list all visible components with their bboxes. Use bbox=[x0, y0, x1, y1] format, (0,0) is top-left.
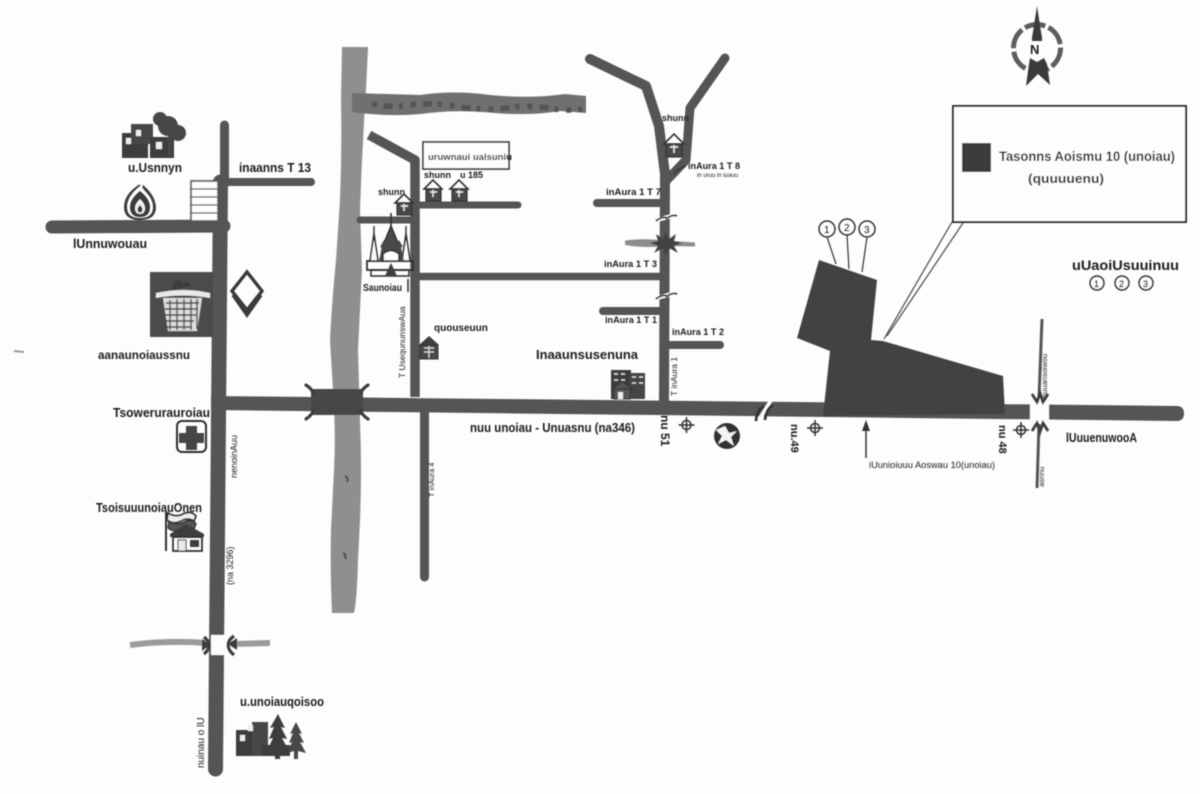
svg-text:quouseuun: quouseuun bbox=[434, 323, 488, 334]
svg-text:T inAura 4: T inAura 4 bbox=[427, 463, 436, 497]
svg-text:3: 3 bbox=[864, 225, 870, 236]
svg-text:shunn: shunn bbox=[424, 170, 451, 180]
svg-text:2: 2 bbox=[1119, 279, 1124, 289]
svg-text:nuinau o lU: nuinau o lU bbox=[196, 717, 207, 768]
svg-text:inAura 1 T 2: inAura 1 T 2 bbox=[672, 327, 724, 337]
svg-text:shunn: shunn bbox=[662, 113, 689, 123]
svg-text:u 185: u 185 bbox=[460, 170, 483, 180]
svg-text:uUaoiUsuuinuu: uUaoiUsuuinuu bbox=[1072, 257, 1179, 273]
svg-text:lUnnuwouau: lUnnuwouau bbox=[73, 236, 147, 251]
svg-text:inAura 1 T 1: inAura 1 T 1 bbox=[605, 315, 657, 325]
svg-text:1: 1 bbox=[1094, 279, 1099, 289]
svg-text:nenoinAuu: nenoinAuu bbox=[229, 435, 239, 478]
svg-text:inAura 1 T 7: inAura 1 T 7 bbox=[606, 187, 661, 197]
svg-text:u.Usnnyn: u.Usnnyn bbox=[128, 160, 182, 175]
svg-text:asnnu: asnnu bbox=[1037, 467, 1046, 487]
svg-text:shunn: shunn bbox=[378, 187, 405, 197]
svg-text:3: 3 bbox=[1143, 279, 1148, 289]
svg-text:Inaaunsusenuna: Inaaunsusenuna bbox=[536, 347, 639, 362]
svg-text:nu 51: nu 51 bbox=[658, 415, 672, 447]
svg-text:Saunoiau: Saunoiau bbox=[363, 283, 402, 294]
svg-text:inaanns T 13: inaanns T 13 bbox=[239, 160, 311, 175]
svg-text:Tsowerurauroiau: Tsowerurauroiau bbox=[113, 406, 210, 420]
svg-text:nuuansoiwou: nuuansoiwou bbox=[1040, 354, 1049, 398]
svg-text:(na 3296): (na 3296) bbox=[225, 546, 235, 585]
svg-text:nu 48: nu 48 bbox=[996, 425, 1008, 454]
svg-text:Tasonns Aoismu 10 (unoiau): Tasonns Aoismu 10 (unoiau) bbox=[999, 148, 1175, 164]
svg-text:N: N bbox=[1030, 42, 1039, 57]
svg-text:inAura 1 T 8: inAura 1 T 8 bbox=[688, 161, 740, 171]
svg-text:u.unoiauqoisoo: u.unoiauqoisoo bbox=[240, 695, 324, 709]
svg-text:T UseqununswAua: T UseqununswAua bbox=[397, 306, 407, 378]
svg-text:aanaunoiaussnu: aanaunoiaussnu bbox=[98, 348, 190, 362]
svg-text:nuu unoiau - Unuasnu (na346): nuu unoiau - Unuasnu (na346) bbox=[470, 420, 635, 435]
svg-text:inAura 1 T 3: inAura 1 T 3 bbox=[604, 259, 657, 269]
svg-text:T inAura 1: T inAura 1 bbox=[669, 357, 679, 396]
svg-text:iUunioiuuu Aoswau 10(unoiau): iUunioiuuu Aoswau 10(unoiau) bbox=[869, 460, 995, 470]
svg-text:nu.49: nu.49 bbox=[788, 424, 800, 453]
svg-text:2: 2 bbox=[844, 223, 850, 234]
svg-text:uruwnaui ualsuniu: uruwnaui ualsuniu bbox=[428, 152, 512, 163]
svg-text:lUuuenuwooA: lUuuenuwooA bbox=[1066, 431, 1137, 445]
svg-text:(quuuuenu): (quuuuenu) bbox=[1028, 171, 1104, 186]
svg-text:in uruu in iuauu: in uruu in iuauu bbox=[697, 173, 738, 179]
svg-text:1: 1 bbox=[824, 225, 830, 236]
